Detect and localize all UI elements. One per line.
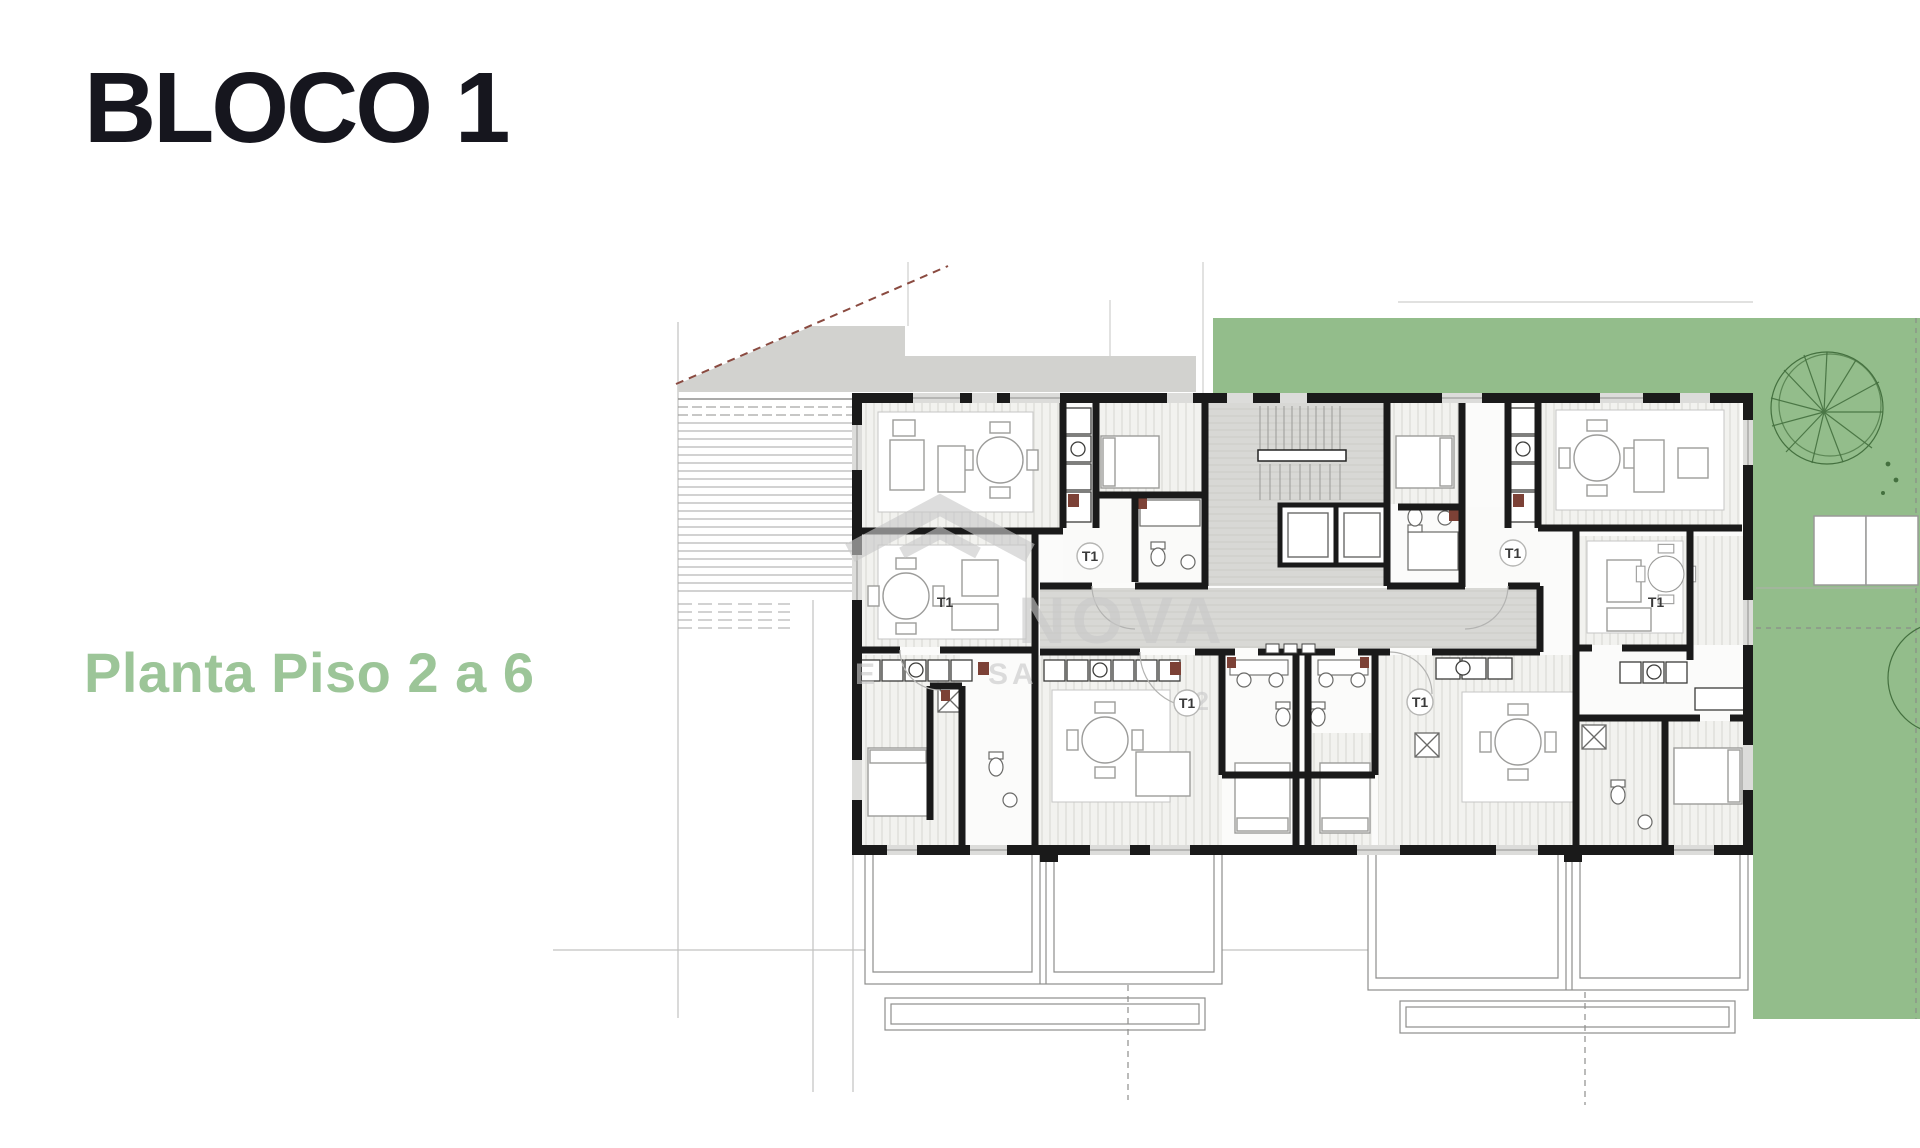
stair-core (1208, 401, 1387, 586)
garden-bench (1814, 516, 1918, 585)
svg-text:T1: T1 (937, 594, 954, 610)
unit-label-lower-center-right: T1 (1407, 689, 1433, 715)
unit-label-mid-left: T1 (937, 594, 954, 610)
stair-handrail (1258, 450, 1346, 461)
svg-text:T1: T1 (1082, 548, 1099, 564)
watermark-frag-mid: SA (988, 658, 1038, 691)
floor-plan: NOVA E SA 42 T1 T1 T1 T1 T1 T1 (0, 0, 1920, 1148)
balconies (865, 853, 1748, 1105)
unit-label-far-right: T1 (1648, 594, 1665, 610)
svg-text:T1: T1 (1179, 695, 1196, 711)
building (852, 393, 1753, 862)
svg-text:T1: T1 (1648, 594, 1665, 610)
svg-text:T1: T1 (1412, 694, 1429, 710)
elevators (1280, 505, 1387, 565)
svg-text:T1: T1 (1505, 545, 1522, 561)
watermark-brand: NOVA (1018, 583, 1228, 657)
watermark-frag-left: E (855, 658, 875, 691)
unit-label-upper-left: T1 (1077, 543, 1103, 569)
unit-label-lower-center-left: T1 (1174, 690, 1200, 716)
unit-label-upper-right: T1 (1500, 540, 1526, 566)
door-thresholds (1266, 644, 1315, 653)
road-band (676, 266, 1196, 392)
pergola-terrace (678, 399, 855, 628)
